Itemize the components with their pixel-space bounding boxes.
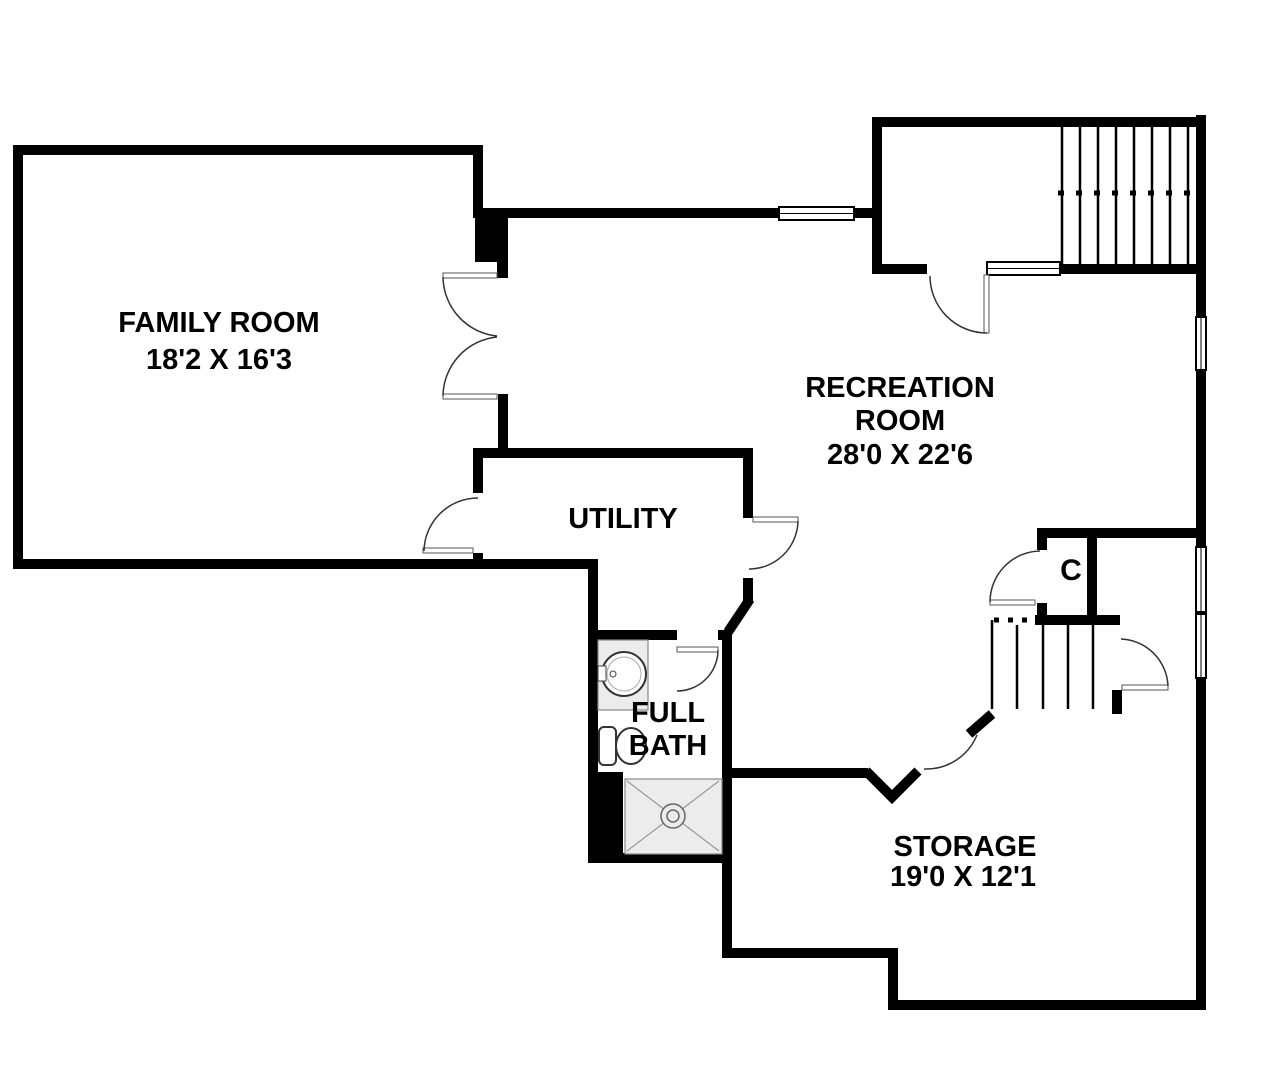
closet-label: C (1060, 554, 1082, 587)
shower-drain-icon (661, 804, 685, 828)
door-leaf (443, 394, 497, 399)
sink-faucet-icon (598, 666, 606, 681)
wall-block (497, 262, 508, 278)
wall-block (475, 208, 508, 262)
storage-room-label: STORAGE (894, 831, 1037, 863)
toilet-tank-icon (599, 727, 616, 765)
door-leaf (677, 647, 718, 652)
full-bath-label-line1: FULL (631, 697, 705, 729)
door-opening (927, 262, 987, 276)
family-room-label: FAMILY ROOM (118, 307, 319, 339)
sink-icon (602, 652, 646, 696)
door-leaf (1122, 685, 1168, 690)
recreation-room-label-line2: ROOM (855, 405, 945, 437)
door-leaf (990, 600, 1035, 605)
recreation-room-label-line1: RECREATION (805, 372, 995, 404)
door-leaf (984, 275, 989, 333)
family-room-dimensions: 18'2 X 16'3 (146, 344, 292, 376)
recreation-room-dimensions: 28'0 X 22'6 (827, 439, 973, 471)
utility-room-label: UTILITY (568, 503, 678, 535)
wall-block (588, 772, 623, 862)
basement-floor-plan: FAMILY ROOM 18'2 X 16'3 RECREATION ROOM … (0, 0, 1269, 1068)
full-bath-label-line2: BATH (629, 730, 707, 762)
storage-room-dimensions: 19'0 X 12'1 (890, 861, 1036, 893)
door-leaf (753, 517, 798, 522)
door-leaf (443, 273, 497, 278)
door-leaf (423, 548, 473, 553)
